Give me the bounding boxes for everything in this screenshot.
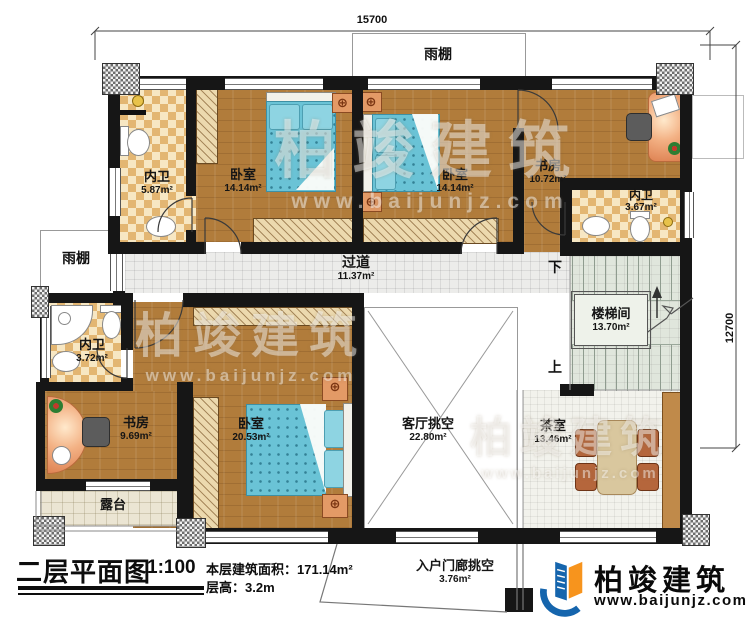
wall xyxy=(560,178,572,254)
wall xyxy=(352,88,363,242)
window xyxy=(396,531,478,543)
toilet-icon xyxy=(127,129,150,156)
column xyxy=(682,514,710,546)
scale-label: 1:100 xyxy=(147,557,196,579)
room-label-bedroom-1: 卧室14.14m² xyxy=(203,168,283,194)
closet-bedroom-1 xyxy=(196,88,218,164)
floor-plan-canvas: ⊕ ⊕ ⊕ ⊕ ⊕ xyxy=(0,0,750,626)
fixture-icon xyxy=(663,217,673,227)
plant-icon xyxy=(49,399,63,413)
canopy-left-label: 雨棚 xyxy=(46,248,106,268)
wardrobe-bedroom-3-top xyxy=(193,307,354,326)
bed-2-pillow xyxy=(375,118,396,153)
wall xyxy=(40,293,133,303)
nightstand: ⊕ xyxy=(322,377,348,401)
column xyxy=(31,286,49,318)
nightstand: ⊕ xyxy=(360,92,382,112)
room-label-bedroom-3: 卧室20.53m² xyxy=(211,417,291,443)
room-label-study-1: 书房10.72m² xyxy=(508,159,588,185)
room-label-terrace: 露台 xyxy=(73,498,153,513)
window xyxy=(225,78,323,90)
window xyxy=(368,78,480,90)
window xyxy=(110,254,123,291)
room-label-bedroom-2: 卧室14.14m² xyxy=(415,168,495,194)
chair-study-1 xyxy=(626,113,652,141)
wall xyxy=(183,293,352,307)
stair-down-label: 下 xyxy=(548,257,562,277)
wall xyxy=(108,76,120,254)
cup-icon xyxy=(52,446,71,465)
wall xyxy=(560,242,692,256)
brand-logo-icon xyxy=(532,556,590,618)
floor-landing xyxy=(523,178,560,256)
wall xyxy=(241,242,462,254)
sink-icon xyxy=(146,216,176,237)
stair-label-box: 楼梯间 13.70m² xyxy=(574,294,648,346)
nightstand: ⊕ xyxy=(332,93,353,113)
stair-up-label: 上 xyxy=(548,357,562,377)
window xyxy=(86,481,150,491)
nightstand: ⊕ xyxy=(360,192,382,212)
floor-area-label: 本层建筑面积：171.14m² xyxy=(206,559,353,578)
bed-3-pillow xyxy=(324,450,345,488)
room-label-corridor: 过道11.37m² xyxy=(316,255,396,282)
wall xyxy=(497,242,524,254)
wardrobe-bedroom-1 xyxy=(253,218,354,244)
window xyxy=(140,78,186,90)
wall xyxy=(560,384,594,396)
nightstand: ⊕ xyxy=(322,494,348,518)
column xyxy=(176,518,206,548)
porch-column xyxy=(505,588,533,612)
wall xyxy=(186,230,196,242)
wall xyxy=(513,128,524,242)
shower-head-icon xyxy=(58,312,71,325)
room-label-study-2: 书房9.69m² xyxy=(96,416,176,442)
title-underline xyxy=(18,586,204,590)
tea-table xyxy=(597,420,637,495)
column xyxy=(656,63,694,95)
bed-3-pillow xyxy=(324,410,345,448)
room-label-tea-room: 茶室13.46m² xyxy=(512,419,594,445)
eave-right xyxy=(692,95,744,159)
dimension-top: 15700 xyxy=(340,14,404,26)
canopy-top-label: 雨棚 xyxy=(408,44,468,64)
cabinet-tea-room xyxy=(662,392,682,530)
column xyxy=(102,63,140,95)
window xyxy=(200,531,328,543)
bed-1-pillow xyxy=(302,104,333,130)
bed-1-pillow xyxy=(269,104,300,130)
wall xyxy=(680,76,692,544)
page-title: 二层平面图 xyxy=(16,552,151,589)
room-label-bathroom-3: 内卫3.72m² xyxy=(50,338,134,364)
light-fixture-icon xyxy=(132,95,144,107)
bed-2-pillow xyxy=(375,155,396,190)
shelf xyxy=(120,110,146,115)
wall xyxy=(177,382,193,532)
brand-url: www.baijunjz.com xyxy=(594,592,747,609)
tea-chair xyxy=(575,463,597,491)
sink-icon xyxy=(582,216,610,236)
room-label-bathroom-2: 内卫3.67m² xyxy=(601,189,681,214)
wall xyxy=(108,242,206,254)
room-label-porch-void: 入户门廊挑空3.76m² xyxy=(384,559,526,585)
dimension-right: 12700 xyxy=(724,300,736,356)
title-underline xyxy=(18,593,204,595)
window xyxy=(552,78,652,90)
wall xyxy=(40,382,133,391)
toilet-icon xyxy=(630,216,650,242)
window xyxy=(560,531,656,543)
tea-chair xyxy=(637,429,659,457)
room-label-bathroom-1: 内卫5.87m² xyxy=(117,170,197,196)
column xyxy=(33,516,65,546)
tea-chair xyxy=(637,463,659,491)
floor-height-label: 层高：3.2m xyxy=(206,577,275,596)
wall xyxy=(36,382,45,491)
wall xyxy=(352,293,364,534)
window xyxy=(684,192,694,238)
wardrobe-bedroom-2 xyxy=(363,218,499,244)
toilet-icon xyxy=(102,311,121,339)
room-label-living-void: 客厅挑空22.80m² xyxy=(375,417,481,443)
